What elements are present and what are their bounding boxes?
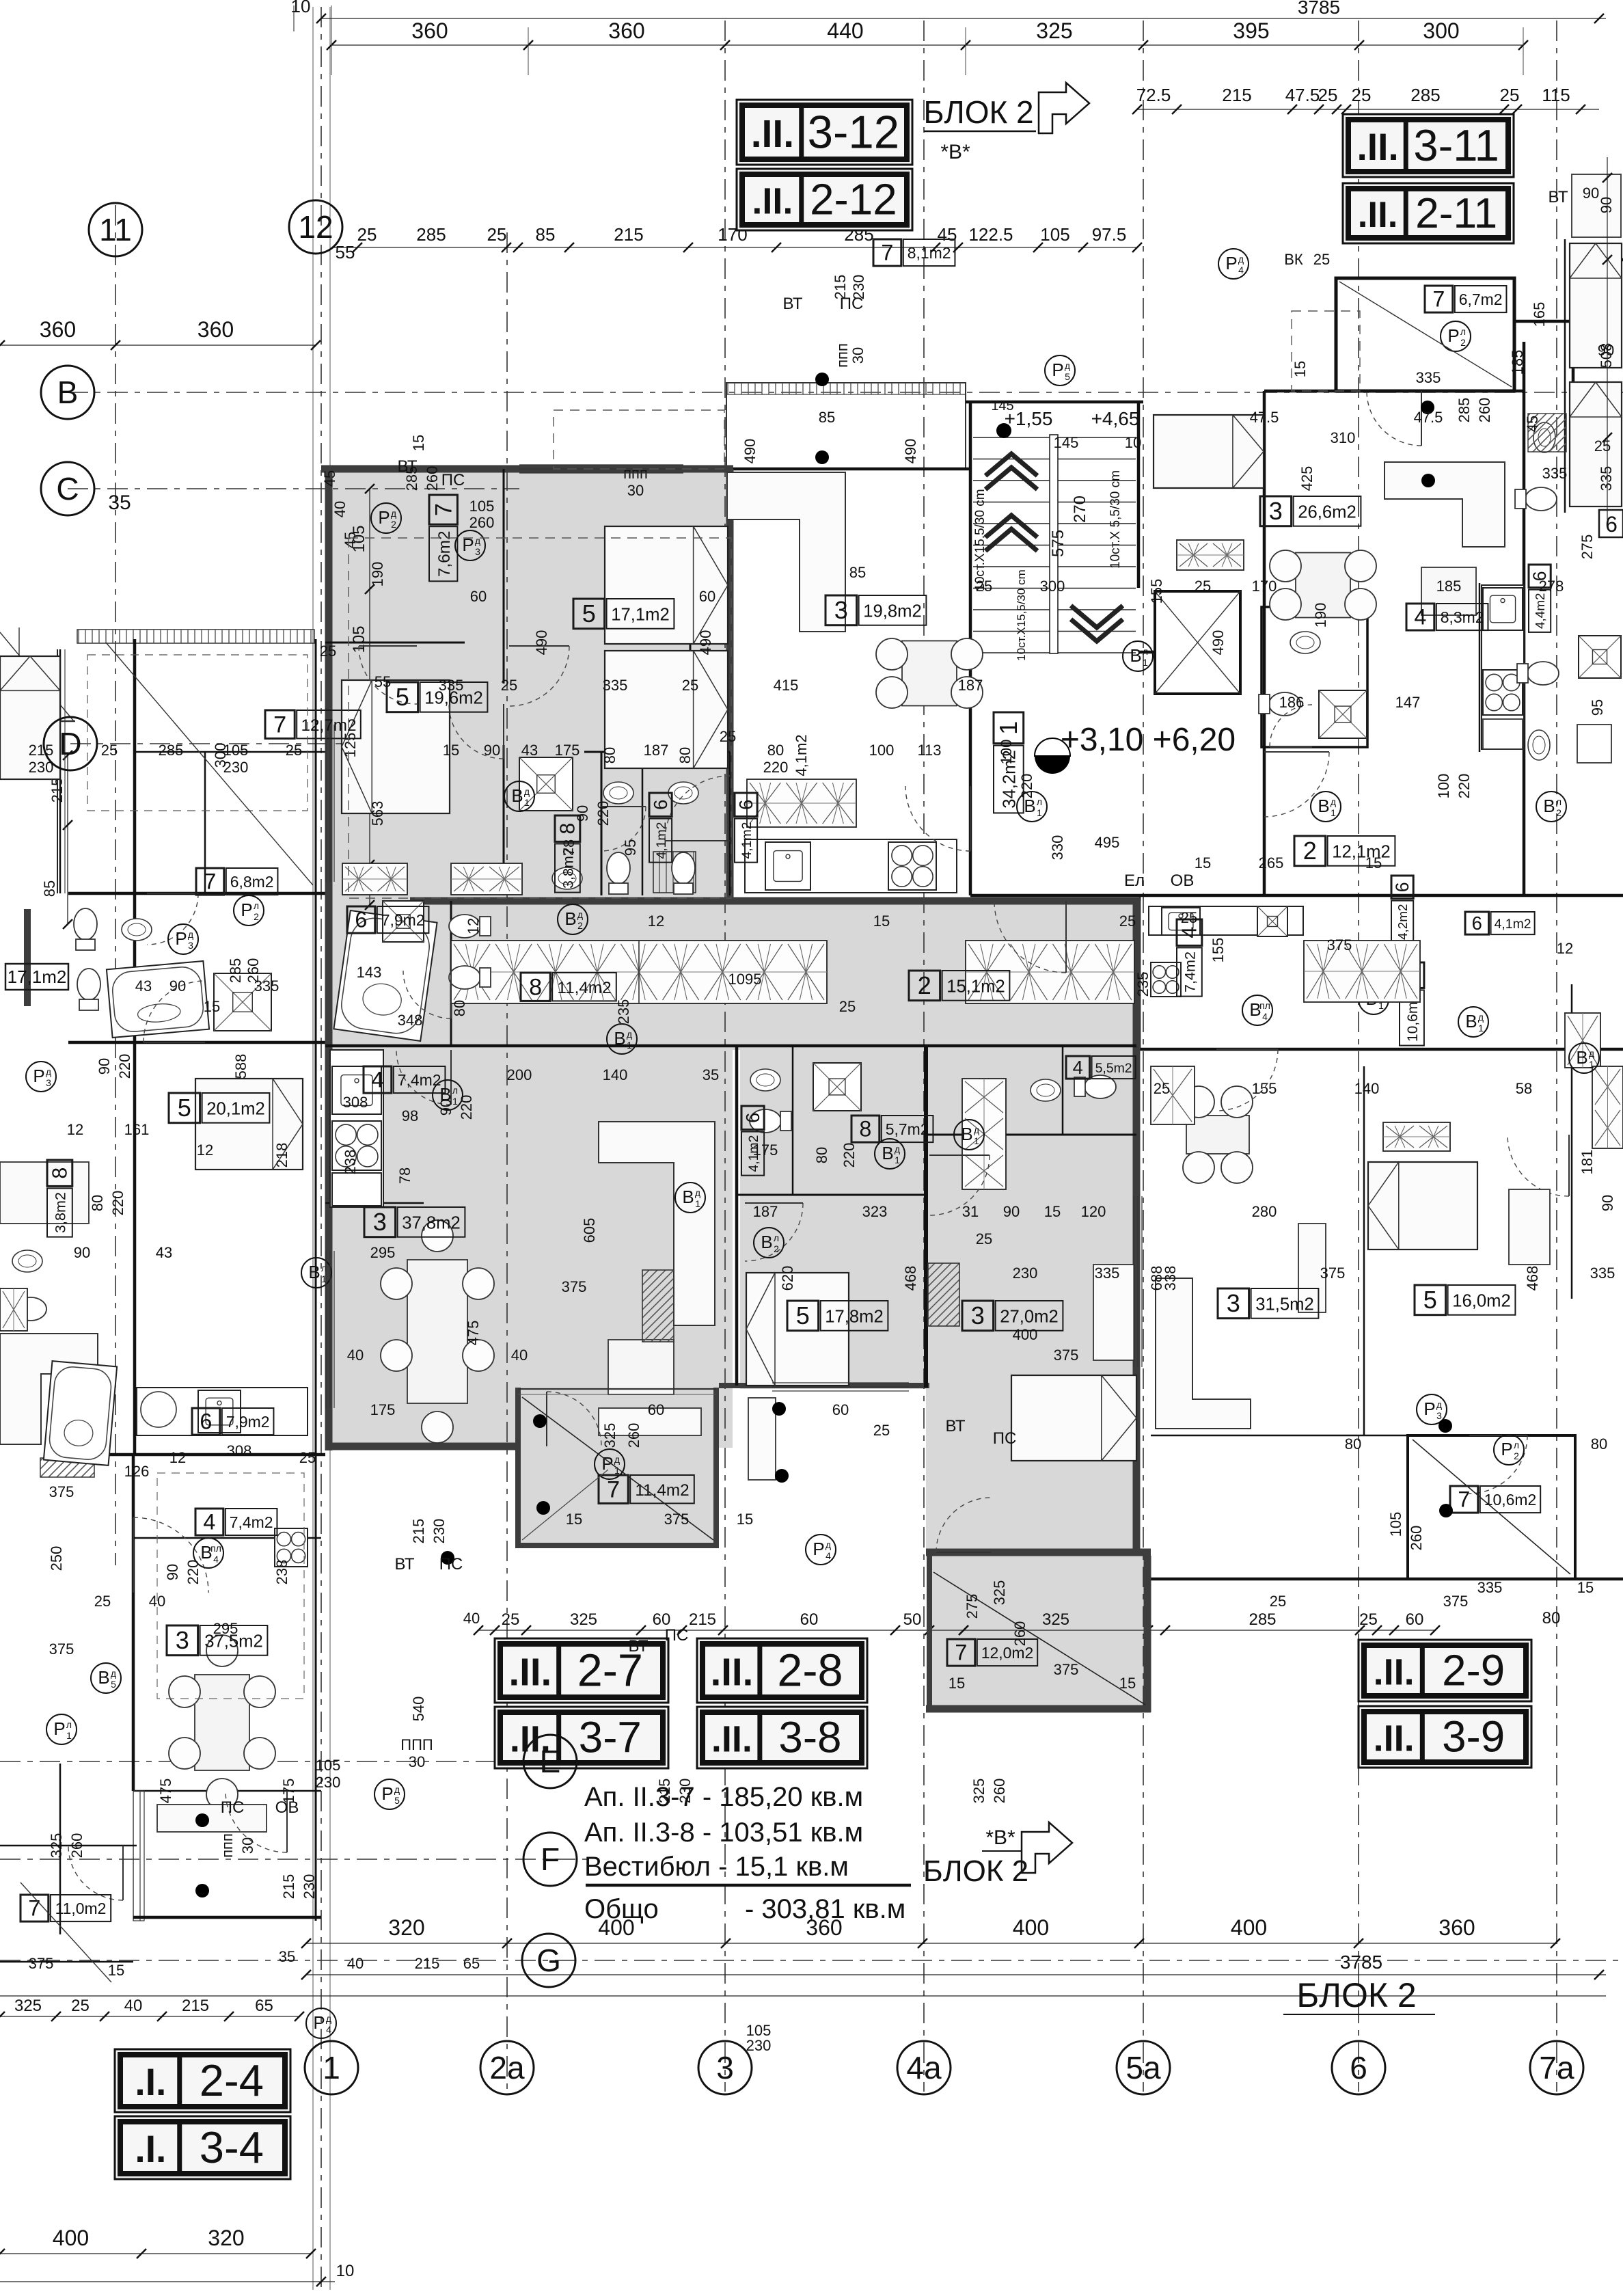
svg-text:12: 12 [197, 1142, 213, 1159]
svg-text:15: 15 [566, 1511, 582, 1528]
svg-text:375: 375 [1443, 1593, 1469, 1610]
svg-text:25: 25 [1500, 85, 1520, 105]
svg-text:Р: Р [381, 1783, 393, 1804]
svg-text:В: В [614, 1028, 625, 1049]
svg-text:.II.: .II. [752, 181, 793, 222]
svg-text:6: 6 [200, 1409, 212, 1433]
svg-text:л: л [1556, 796, 1561, 807]
svg-text:220: 220 [458, 1095, 475, 1120]
svg-text:д: д [391, 508, 396, 519]
svg-text:60: 60 [832, 1401, 849, 1418]
svg-text:90: 90 [574, 805, 591, 822]
svg-text:43: 43 [135, 977, 152, 995]
svg-text:Р: Р [1423, 1399, 1435, 1419]
svg-text:215: 215 [182, 1997, 209, 2015]
svg-text:3: 3 [1436, 1410, 1442, 1421]
svg-text:47.5: 47.5 [1250, 409, 1279, 426]
svg-text:ОВ: ОВ [1171, 872, 1195, 890]
svg-text:д: д [895, 1144, 900, 1154]
svg-text:95: 95 [622, 839, 639, 856]
svg-text:2: 2 [1303, 837, 1317, 865]
svg-text:425: 425 [1298, 466, 1315, 491]
svg-text:588: 588 [232, 1054, 249, 1079]
svg-text:25: 25 [682, 677, 698, 694]
svg-text:7,4m2: 7,4m2 [1181, 951, 1198, 992]
svg-text:85: 85 [849, 564, 866, 581]
svg-text:415: 415 [774, 677, 799, 694]
svg-text:115: 115 [1542, 85, 1570, 105]
svg-text:145: 145 [991, 399, 1013, 414]
svg-text:ВТ: ВТ [782, 295, 802, 313]
svg-text:- 303,81 кв.м: - 303,81 кв.м [745, 1894, 905, 1924]
svg-text:215: 215 [410, 1519, 427, 1544]
svg-text:375: 375 [49, 1483, 74, 1500]
svg-text:11,4m2: 11,4m2 [557, 979, 611, 997]
svg-text:45: 45 [321, 470, 338, 487]
svg-text:В: В [682, 1187, 694, 1207]
svg-text:280: 280 [1252, 1203, 1277, 1220]
svg-text:90: 90 [484, 742, 500, 759]
svg-text:5,7m2: 5,7m2 [886, 1120, 929, 1138]
svg-text:БЛОК 2: БЛОК 2 [923, 94, 1033, 130]
svg-text:5,5m2: 5,5m2 [1095, 1061, 1132, 1076]
svg-text:15: 15 [108, 1962, 124, 1979]
svg-text:5: 5 [1423, 1286, 1437, 1314]
svg-text:3-12: 3-12 [808, 107, 900, 158]
svg-text:4: 4 [1238, 265, 1244, 275]
svg-text:348: 348 [398, 1012, 423, 1029]
svg-text:ВТ: ВТ [394, 1555, 414, 1574]
svg-text:260: 260 [1011, 1621, 1028, 1647]
svg-text:4: 4 [213, 1554, 219, 1565]
svg-text:215: 215 [689, 1610, 716, 1629]
svg-text:5: 5 [394, 1795, 400, 1806]
svg-text:260: 260 [469, 514, 495, 531]
svg-text:325: 325 [970, 1779, 987, 1804]
svg-text:285: 285 [1410, 85, 1440, 105]
svg-text:25: 25 [1181, 909, 1197, 926]
svg-text:Ел: Ел [1124, 872, 1145, 890]
svg-text:6: 6 [742, 1113, 763, 1123]
svg-text:45: 45 [342, 532, 359, 548]
svg-text:Р: Р [1225, 253, 1237, 273]
svg-text:д: д [974, 1124, 979, 1135]
svg-text:360: 360 [411, 18, 448, 43]
svg-text:12: 12 [648, 913, 664, 930]
svg-text:85: 85 [41, 880, 58, 897]
svg-text:40: 40 [347, 1955, 364, 1972]
svg-text:30: 30 [849, 347, 867, 364]
svg-text:2: 2 [577, 920, 583, 931]
svg-text:Р: Р [33, 1066, 44, 1086]
svg-text:25: 25 [101, 742, 118, 759]
svg-text:325: 325 [1036, 18, 1072, 43]
svg-text:155: 155 [1252, 1080, 1277, 1097]
svg-text:400: 400 [1231, 1915, 1267, 1940]
svg-text:375: 375 [1327, 936, 1352, 954]
svg-text:1: 1 [1331, 807, 1336, 818]
svg-text:ОВ: ОВ [275, 1798, 299, 1817]
svg-text:4: 4 [1414, 604, 1426, 629]
svg-text:235: 235 [615, 999, 632, 1025]
svg-text:285: 285 [1249, 1610, 1276, 1629]
svg-text:Ап. II.3-7 - 185,20 кв.м: Ап. II.3-7 - 185,20 кв.м [584, 1782, 863, 1812]
svg-text:330: 330 [1049, 835, 1066, 861]
svg-text:4,1m2: 4,1m2 [793, 734, 810, 776]
svg-text:12: 12 [465, 918, 482, 934]
svg-text:12: 12 [67, 1121, 83, 1138]
svg-text:47.5: 47.5 [1414, 409, 1443, 426]
svg-text:97.5: 97.5 [1092, 224, 1127, 245]
svg-text:25: 25 [487, 224, 507, 245]
svg-text:В: В [1543, 796, 1555, 816]
svg-text:300: 300 [212, 743, 229, 768]
svg-text:3: 3 [176, 1626, 189, 1654]
svg-text:2a: 2a [489, 2050, 525, 2085]
svg-text:495: 495 [1095, 834, 1120, 851]
svg-text:35: 35 [108, 491, 131, 514]
svg-text:3: 3 [834, 596, 848, 624]
svg-text:д: д [326, 2013, 331, 2024]
svg-text:4,4m2: 4,4m2 [1533, 593, 1548, 629]
svg-text:C: C [56, 471, 79, 507]
svg-text:4: 4 [1178, 927, 1201, 938]
svg-text:ПС: ПС [665, 1626, 689, 1645]
svg-text:26,6m2: 26,6m2 [1298, 502, 1356, 522]
svg-text:260: 260 [68, 1833, 85, 1859]
svg-text:325: 325 [48, 1833, 65, 1859]
svg-text:1: 1 [994, 721, 1022, 735]
svg-text:375: 375 [1054, 1347, 1079, 1364]
svg-text:д: д [826, 1539, 831, 1550]
svg-text:1: 1 [974, 1135, 979, 1146]
svg-text:10ст.X15,5/30 cm: 10ст.X15,5/30 cm [973, 489, 987, 591]
svg-text:95: 95 [1589, 699, 1606, 716]
svg-text:395: 395 [1233, 18, 1269, 43]
svg-text:1: 1 [895, 1154, 900, 1165]
svg-text:В: В [882, 1143, 893, 1163]
svg-text:220: 220 [109, 1191, 126, 1216]
svg-text:335: 335 [1416, 369, 1441, 386]
svg-text:25: 25 [720, 728, 736, 745]
svg-text:98: 98 [402, 1107, 418, 1124]
svg-text:335: 335 [1095, 1265, 1120, 1282]
svg-text:325: 325 [991, 1580, 1008, 1606]
svg-text:1095: 1095 [728, 971, 762, 988]
svg-text:85: 85 [819, 409, 835, 426]
svg-text:4,1m2: 4,1m2 [654, 822, 669, 859]
svg-text:10ст.X 5,5/30 cm: 10ст.X 5,5/30 cm [1108, 470, 1123, 569]
svg-text:85: 85 [536, 224, 556, 245]
svg-text:155: 155 [1210, 938, 1227, 963]
svg-text:7: 7 [28, 1895, 40, 1920]
svg-text:218: 218 [273, 1143, 290, 1168]
svg-text:90: 90 [1003, 1203, 1020, 1220]
svg-text:2-9: 2-9 [1442, 1646, 1505, 1695]
svg-text:*B*: *B* [940, 141, 970, 163]
svg-text:15: 15 [204, 998, 220, 1015]
svg-text:100: 100 [869, 742, 895, 759]
svg-text:Р: Р [1447, 325, 1459, 346]
svg-text:143: 143 [357, 964, 382, 981]
svg-text:Общо: Общо [584, 1894, 659, 1924]
svg-text:335: 335 [1542, 465, 1568, 482]
svg-text:6: 6 [1392, 882, 1413, 892]
svg-text:ПС: ПС [840, 295, 864, 313]
svg-text:230: 230 [301, 1874, 318, 1900]
svg-text:220: 220 [595, 801, 612, 826]
svg-text:2: 2 [774, 1243, 779, 1254]
svg-text:7: 7 [1458, 1487, 1470, 1511]
svg-text:6: 6 [1350, 2050, 1367, 2085]
svg-text:Р: Р [175, 928, 187, 949]
svg-text:15: 15 [1119, 1675, 1136, 1692]
svg-text:468: 468 [902, 1266, 919, 1291]
svg-text:30: 30 [627, 482, 644, 499]
svg-text:80: 80 [601, 747, 618, 764]
svg-text:260: 260 [625, 1423, 642, 1448]
svg-text:165: 165 [1531, 302, 1548, 327]
svg-text:140: 140 [1354, 1080, 1380, 1097]
svg-text:200: 200 [507, 1066, 532, 1083]
svg-text:7: 7 [204, 869, 216, 893]
svg-text:20,1m2: 20,1m2 [206, 1099, 265, 1118]
svg-text:7,9m2: 7,9m2 [226, 1413, 270, 1431]
svg-text:105: 105 [469, 498, 495, 515]
svg-text:360: 360 [608, 18, 644, 43]
svg-text:31: 31 [962, 1203, 979, 1220]
svg-text:161: 161 [124, 1121, 150, 1138]
svg-text:Р: Р [53, 1718, 65, 1739]
svg-text:220: 220 [1456, 774, 1473, 799]
svg-text:15: 15 [873, 913, 890, 930]
svg-text:122.5: 122.5 [968, 224, 1013, 245]
svg-text:50: 50 [903, 1610, 922, 1629]
svg-text:250: 250 [48, 1546, 65, 1571]
svg-text:278: 278 [1539, 578, 1564, 595]
svg-text:2: 2 [1460, 337, 1466, 348]
svg-text:4: 4 [371, 1067, 383, 1092]
svg-text:325: 325 [570, 1610, 597, 1629]
svg-text:175: 175 [370, 1401, 396, 1418]
svg-text:238: 238 [342, 1150, 359, 1175]
svg-text:60: 60 [648, 1401, 664, 1418]
svg-text:л: л [1037, 796, 1042, 807]
svg-text:1: 1 [1037, 807, 1042, 818]
svg-text:ВК: ВК [1284, 251, 1303, 268]
svg-text:80: 80 [1345, 1435, 1361, 1453]
svg-text:125: 125 [342, 733, 359, 758]
svg-text:60: 60 [800, 1610, 819, 1629]
svg-text:490: 490 [697, 630, 714, 656]
svg-text:3-7: 3-7 [579, 1713, 642, 1762]
svg-text:д: д [1238, 254, 1244, 265]
svg-text:230: 230 [431, 1519, 448, 1544]
svg-text:Р: Р [241, 900, 252, 920]
svg-text:335: 335 [1590, 1265, 1615, 1282]
svg-text:+3,10 +6,20: +3,10 +6,20 [1061, 722, 1236, 758]
svg-text:В: В [1465, 1011, 1477, 1031]
svg-text:В: В [1130, 645, 1141, 666]
svg-text:563: 563 [369, 801, 386, 826]
svg-text:4: 4 [203, 1509, 215, 1534]
svg-text:ПС: ПС [439, 1555, 463, 1574]
svg-text:185: 185 [1436, 578, 1462, 595]
svg-text:ППП: ППП [400, 1736, 433, 1753]
svg-text:1: 1 [66, 1730, 72, 1741]
svg-text:3: 3 [475, 546, 480, 557]
svg-text:.II.: .II. [1356, 126, 1398, 168]
svg-text:д: д [475, 535, 480, 546]
svg-text:19,8m2: 19,8m2 [863, 602, 922, 621]
svg-text:.II.: .II. [751, 112, 794, 156]
svg-text:260: 260 [991, 1779, 1008, 1804]
svg-text:3-9: 3-9 [1442, 1712, 1505, 1761]
svg-text:60: 60 [1406, 1610, 1424, 1629]
svg-text:230: 230 [1013, 1265, 1038, 1282]
svg-text:2-8: 2-8 [777, 1646, 843, 1697]
svg-text:7: 7 [431, 503, 456, 516]
svg-text:5: 5 [111, 1679, 116, 1690]
svg-text:6,8m2: 6,8m2 [230, 873, 274, 891]
svg-text:43: 43 [156, 1244, 172, 1261]
svg-text:220: 220 [116, 1054, 133, 1079]
svg-text:80: 80 [451, 1000, 468, 1016]
svg-text:8,3m2: 8,3m2 [1441, 608, 1484, 626]
svg-text:186: 186 [1279, 694, 1305, 711]
svg-text:Ап. II.3-8 - 103,51 кв.м: Ап. II.3-8 - 103,51 кв.м [584, 1818, 863, 1848]
svg-text:Р: Р [1052, 360, 1063, 380]
svg-text:375: 375 [664, 1511, 690, 1528]
svg-text:3-11: 3-11 [1413, 120, 1499, 170]
svg-text:F: F [541, 1841, 560, 1877]
svg-text:8,1m2: 8,1m2 [908, 244, 951, 262]
svg-text:215: 215 [415, 1955, 440, 1972]
svg-text:д: д [46, 1066, 51, 1077]
svg-text:27,0m2: 27,0m2 [1000, 1307, 1059, 1326]
svg-text:8: 8 [49, 1167, 72, 1179]
svg-text:д: д [1065, 360, 1070, 371]
svg-text:55: 55 [336, 242, 355, 262]
svg-text:181: 181 [1579, 1150, 1596, 1175]
svg-text:7a: 7a [1539, 2050, 1574, 2085]
svg-text:490: 490 [741, 439, 759, 464]
svg-text:+4,65: +4,65 [1091, 408, 1140, 429]
svg-text:В: В [761, 1232, 772, 1252]
svg-text:D: D [59, 726, 81, 761]
svg-text:113: 113 [917, 742, 941, 759]
svg-text:260: 260 [1476, 398, 1493, 423]
svg-text:3785: 3785 [1298, 0, 1340, 18]
svg-text:285: 285 [416, 224, 446, 245]
svg-text:25: 25 [1359, 1610, 1378, 1629]
svg-text:ПС: ПС [993, 1429, 1017, 1448]
svg-text:55: 55 [374, 673, 391, 690]
svg-text:д: д [614, 1454, 620, 1465]
svg-text:90: 90 [1583, 185, 1599, 202]
svg-text:30: 30 [409, 1753, 425, 1770]
svg-text:90: 90 [1598, 197, 1615, 213]
svg-text:8: 8 [529, 974, 542, 1000]
svg-text:15: 15 [1044, 1203, 1061, 1220]
svg-text:6,7m2: 6,7m2 [1459, 291, 1503, 308]
svg-text:7: 7 [273, 712, 286, 738]
svg-text:40: 40 [463, 1610, 480, 1627]
svg-text:Р: Р [313, 2012, 325, 2033]
svg-text:43: 43 [521, 742, 538, 759]
svg-text:275: 275 [1579, 535, 1596, 560]
svg-text:325: 325 [1042, 1610, 1069, 1629]
svg-text:360: 360 [40, 317, 76, 342]
svg-text:д: д [188, 929, 193, 940]
svg-text:3: 3 [1269, 497, 1283, 525]
svg-text:д: д [1436, 1399, 1442, 1410]
svg-text:90: 90 [74, 1244, 90, 1261]
svg-text:310: 310 [1331, 429, 1356, 446]
svg-text:187: 187 [644, 742, 669, 759]
svg-text:105: 105 [1040, 224, 1069, 245]
svg-text:25: 25 [286, 742, 302, 759]
svg-text:65: 65 [463, 1955, 480, 1972]
svg-text:40: 40 [124, 1997, 143, 2015]
svg-text:35: 35 [279, 1948, 295, 1965]
svg-text:4: 4 [826, 1550, 831, 1561]
svg-text:Р: Р [1501, 1439, 1512, 1459]
svg-text:15: 15 [737, 1511, 753, 1528]
svg-text:47.5: 47.5 [1285, 85, 1320, 105]
svg-text:215: 215 [656, 1779, 673, 1804]
svg-text:2-4: 2-4 [200, 2055, 264, 2105]
svg-text:8: 8 [859, 1116, 871, 1141]
svg-text:Р: Р [378, 507, 390, 528]
svg-text:475: 475 [157, 1779, 174, 1804]
svg-text:л: л [1514, 1440, 1519, 1450]
svg-text:пл: пл [210, 1543, 221, 1554]
svg-text:60: 60 [470, 588, 487, 605]
svg-text:490: 490 [902, 439, 919, 464]
svg-text:ПС: ПС [441, 471, 465, 489]
svg-text:2-12: 2-12 [810, 175, 897, 224]
svg-text:.II.: .II. [1358, 195, 1398, 235]
svg-text:7: 7 [607, 1476, 620, 1502]
svg-text:235: 235 [1134, 972, 1151, 997]
svg-text:220: 220 [185, 1560, 202, 1585]
svg-text:д: д [627, 1029, 632, 1040]
svg-text:468: 468 [1524, 1266, 1541, 1291]
svg-text:215: 215 [29, 742, 54, 759]
svg-text:90: 90 [169, 977, 186, 995]
svg-text:В: В [961, 1124, 972, 1144]
svg-text:6: 6 [1472, 913, 1482, 934]
svg-text:30: 30 [239, 1837, 256, 1854]
svg-text:265: 265 [1259, 854, 1284, 872]
svg-text:л: л [66, 1719, 72, 1730]
svg-text:7,9m2: 7,9m2 [381, 911, 425, 929]
svg-text:147: 147 [1395, 694, 1421, 711]
svg-text:д: д [695, 1187, 700, 1198]
svg-text:4: 4 [1262, 1011, 1268, 1022]
svg-text:.II.: .II. [711, 1719, 752, 1760]
svg-text:15: 15 [1365, 854, 1382, 872]
svg-text:5: 5 [796, 1301, 810, 1329]
svg-text:11,4m2: 11,4m2 [635, 1481, 689, 1500]
svg-text:375: 375 [1320, 1265, 1346, 1282]
svg-text:25: 25 [1352, 85, 1372, 105]
svg-text:285: 285 [159, 742, 184, 759]
svg-text:3: 3 [971, 1301, 985, 1329]
svg-text:335: 335 [603, 677, 628, 694]
svg-text:ВТ: ВТ [628, 1637, 648, 1656]
